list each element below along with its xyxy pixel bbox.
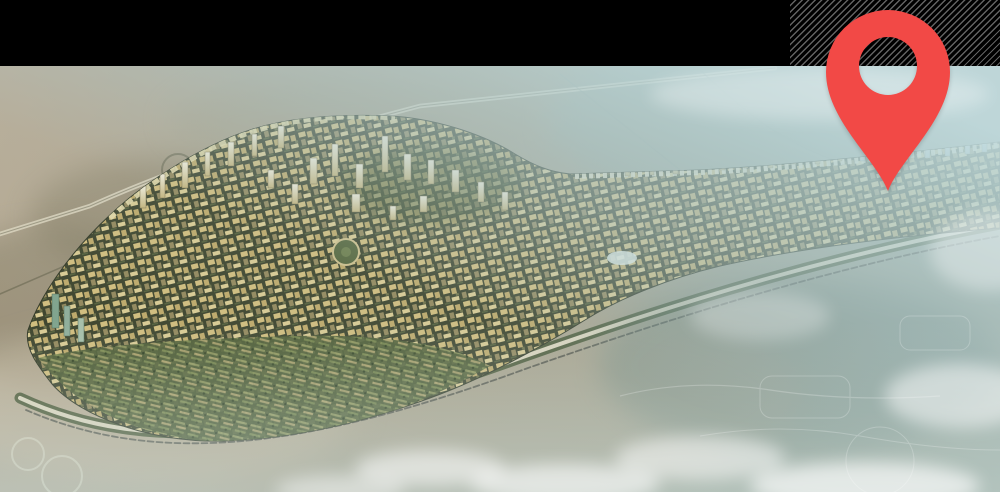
screenshot-root [0,0,1000,492]
location-pin-shape [826,10,950,191]
location-pin-icon[interactable] [823,10,953,191]
